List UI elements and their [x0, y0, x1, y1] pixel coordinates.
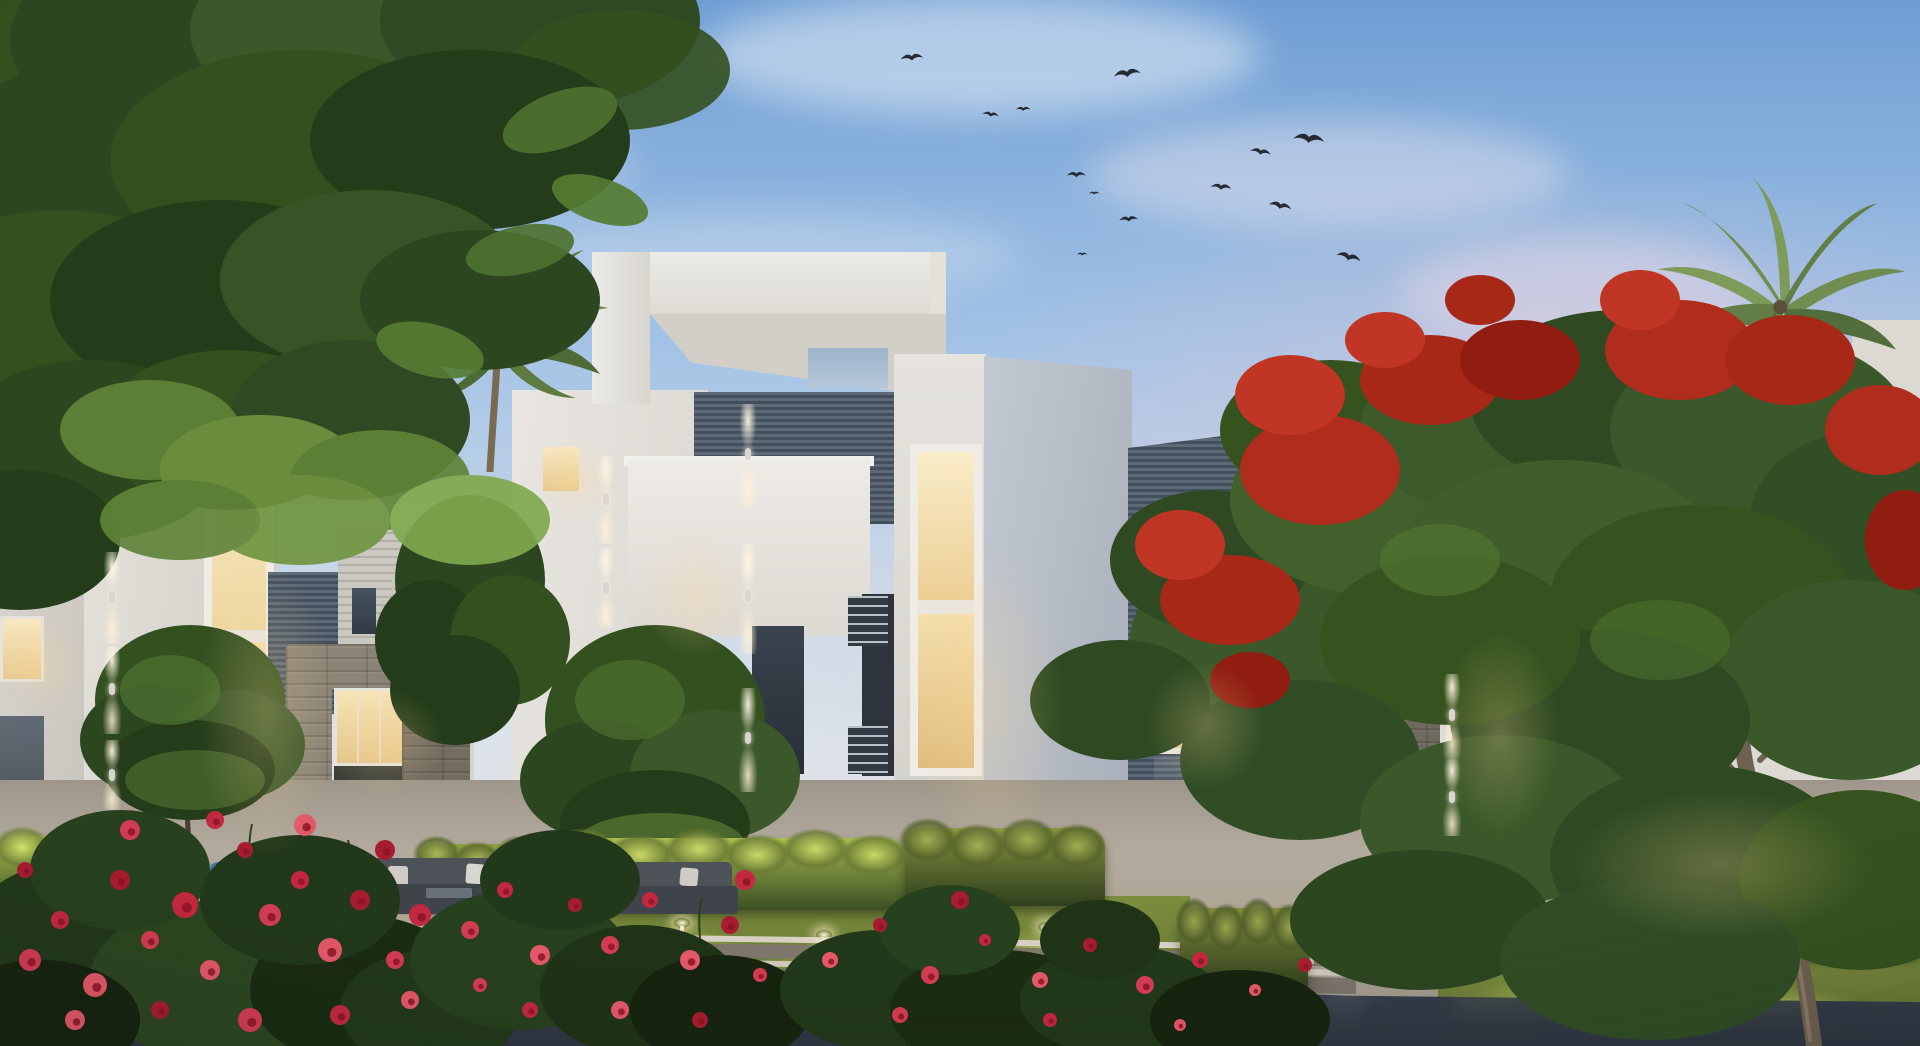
rendering-stage: Dusk architectural rendering — modern wh…	[0, 0, 1920, 1046]
vignette	[0, 0, 1920, 1046]
